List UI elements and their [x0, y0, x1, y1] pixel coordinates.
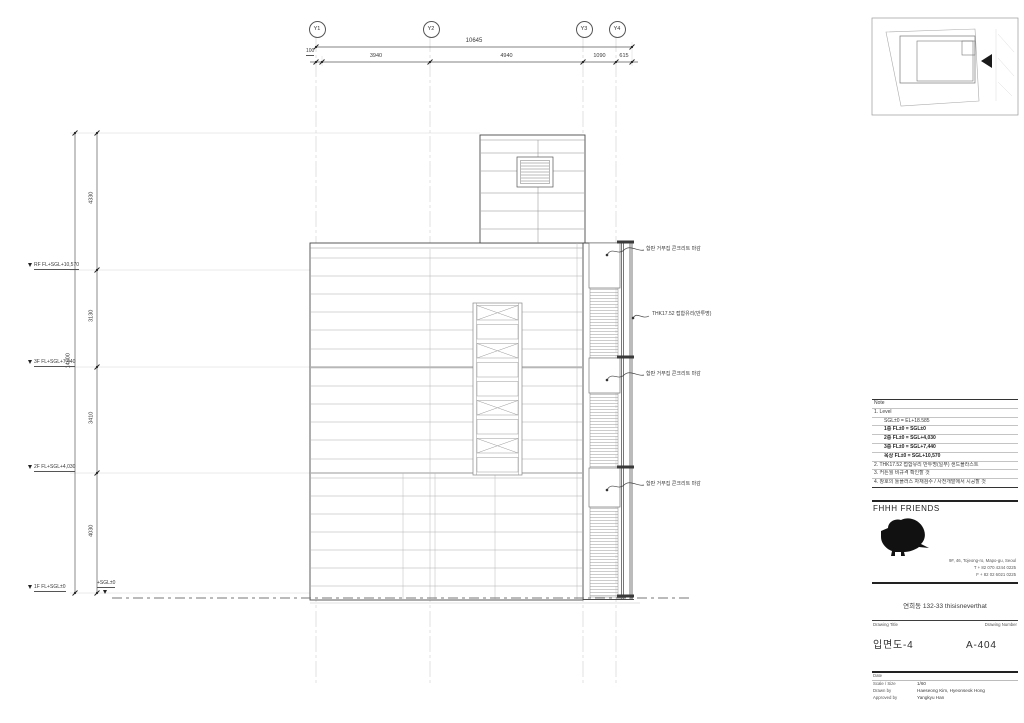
note-level: 1. Level	[872, 409, 1018, 418]
note-level-roof: 옥상 FL±0 = SGL+10,570	[872, 453, 1018, 462]
callout-concrete-2: 합판 거푸집 콘크리트 마감	[646, 372, 701, 377]
level-label: 3F FL+SGL+7,440	[34, 360, 75, 367]
callout-concrete-3: 합판 거푸집 콘크리트 마감	[646, 482, 701, 487]
level-marker-3f: 3F FL+SGL+7,440	[28, 360, 75, 367]
glass-section-marks	[617, 241, 634, 598]
level-marker-rf: RF FL+SGL+10,570	[28, 263, 79, 270]
dim-seg-3130: 3130	[89, 286, 95, 346]
callout-glass: THK17.52 접합유리(반투명)	[652, 312, 711, 317]
grid-bubble-y2: Y2	[423, 21, 440, 38]
note-level-1f: 1층 FL±0 = SGL±0	[872, 426, 1018, 435]
divider	[872, 620, 1018, 621]
note-4: 4. 창호의 툴플러스 자재검수 / 사전개발에서 시공할 것	[872, 479, 1018, 487]
drawing-number: A-404	[966, 641, 997, 651]
vent-grille	[517, 157, 553, 187]
grid-label: Y4	[614, 26, 621, 32]
grid-label: Y1	[314, 26, 321, 32]
level-marker-icon	[28, 263, 32, 267]
grid-label: Y3	[581, 26, 588, 32]
dim-seg-4940: 4940	[466, 54, 547, 60]
window-stack	[473, 303, 522, 475]
ground-level-label: +SGL±0	[97, 581, 115, 588]
level-marker-2f: 2F FL+SGL+4,030	[28, 465, 75, 472]
drawing-title: 입면도-4	[873, 641, 914, 651]
elevation-drawing	[0, 0, 1024, 723]
scale-label: Scale / Size	[873, 682, 896, 686]
dim-seg-3940: 3940	[336, 54, 416, 60]
level-marker-icon	[28, 585, 32, 589]
building-outline	[310, 135, 585, 600]
note-2: 2. THK17.52 접합유리 반투명(일부) 샌드블라스트	[872, 462, 1018, 471]
key-plan	[872, 18, 1018, 115]
dim-seg-4330: 4330	[89, 168, 95, 228]
scale-value: 1/60	[917, 682, 926, 687]
glass-mullion-lines	[622, 243, 633, 599]
dim-overall-width: 10645	[424, 38, 524, 44]
firm-tel: T + 82 070 4244 0225	[872, 566, 1016, 570]
grid-bubble-y3: Y3	[576, 21, 593, 38]
drawn-by-value: Haeseong Kim, Hyeonseok Hong	[917, 689, 985, 694]
firm-fax: F + 82 02 6021 0225	[872, 573, 1016, 577]
level-marker-icon	[28, 465, 32, 469]
divider	[872, 500, 1018, 502]
divider	[872, 582, 1018, 584]
callout-concrete-1: 합판 거푸집 콘크리트 마감	[646, 247, 701, 252]
level-marker-1f: 1F FL+SGL±0	[28, 585, 66, 592]
project-name: 연희동 132-33 thisisneverthat	[872, 604, 1018, 611]
approved-by-value: Yangkyu Han	[917, 696, 944, 701]
drawn-by-label: Drawn by	[873, 689, 891, 693]
fhhh-bird-logo-icon	[881, 518, 929, 556]
divider	[872, 671, 1018, 673]
note-level-2f: 2층 FL±0 = SGL+4,030	[872, 435, 1018, 444]
level-label: RF FL+SGL+10,570	[34, 263, 79, 270]
note-sgl: SGL±0 = EL+18.585	[872, 418, 1018, 427]
dim-seg-615: 615	[607, 54, 641, 60]
grid-bubble-y4: Y4	[609, 21, 626, 38]
dim-seg-4030: 4030	[89, 501, 95, 561]
approved-by-label: Approved by	[873, 696, 897, 700]
firm-name: FHHH FRIENDS	[873, 505, 940, 513]
notes-header: Note	[872, 400, 1018, 409]
right-wing	[583, 241, 634, 600]
note-level-3f: 3층 FL±0 = SGL+7,440	[872, 444, 1018, 453]
grid-bubble-y1: Y1	[309, 21, 326, 38]
grid-label: Y2	[428, 26, 435, 32]
divider	[872, 680, 1018, 681]
dim-seg-100: 100	[306, 49, 314, 56]
level-label: 1F FL+SGL±0	[34, 585, 66, 592]
date-label: Date	[873, 674, 882, 678]
level-label: 2F FL+SGL+4,030	[34, 465, 75, 472]
level-marker-icon	[28, 360, 32, 364]
drawing-sheet: Y1 Y2 Y3 Y4 10645 100 3940 4940 1090 615…	[0, 0, 1024, 723]
note-3: 3. 커튼월 비규격 확인할 것	[872, 470, 1018, 479]
drawing-number-label: Drawing Number	[872, 623, 1017, 627]
dim-seg-3410: 3410	[89, 388, 95, 448]
firm-address: 9F, 46, Tojeong-ro, Mapo-gu, Seoul	[872, 559, 1016, 563]
ground-level-marker-icon	[103, 590, 107, 594]
notes-block: Note 1. Level SGL±0 = EL+18.585 1층 FL±0 …	[872, 399, 1018, 488]
